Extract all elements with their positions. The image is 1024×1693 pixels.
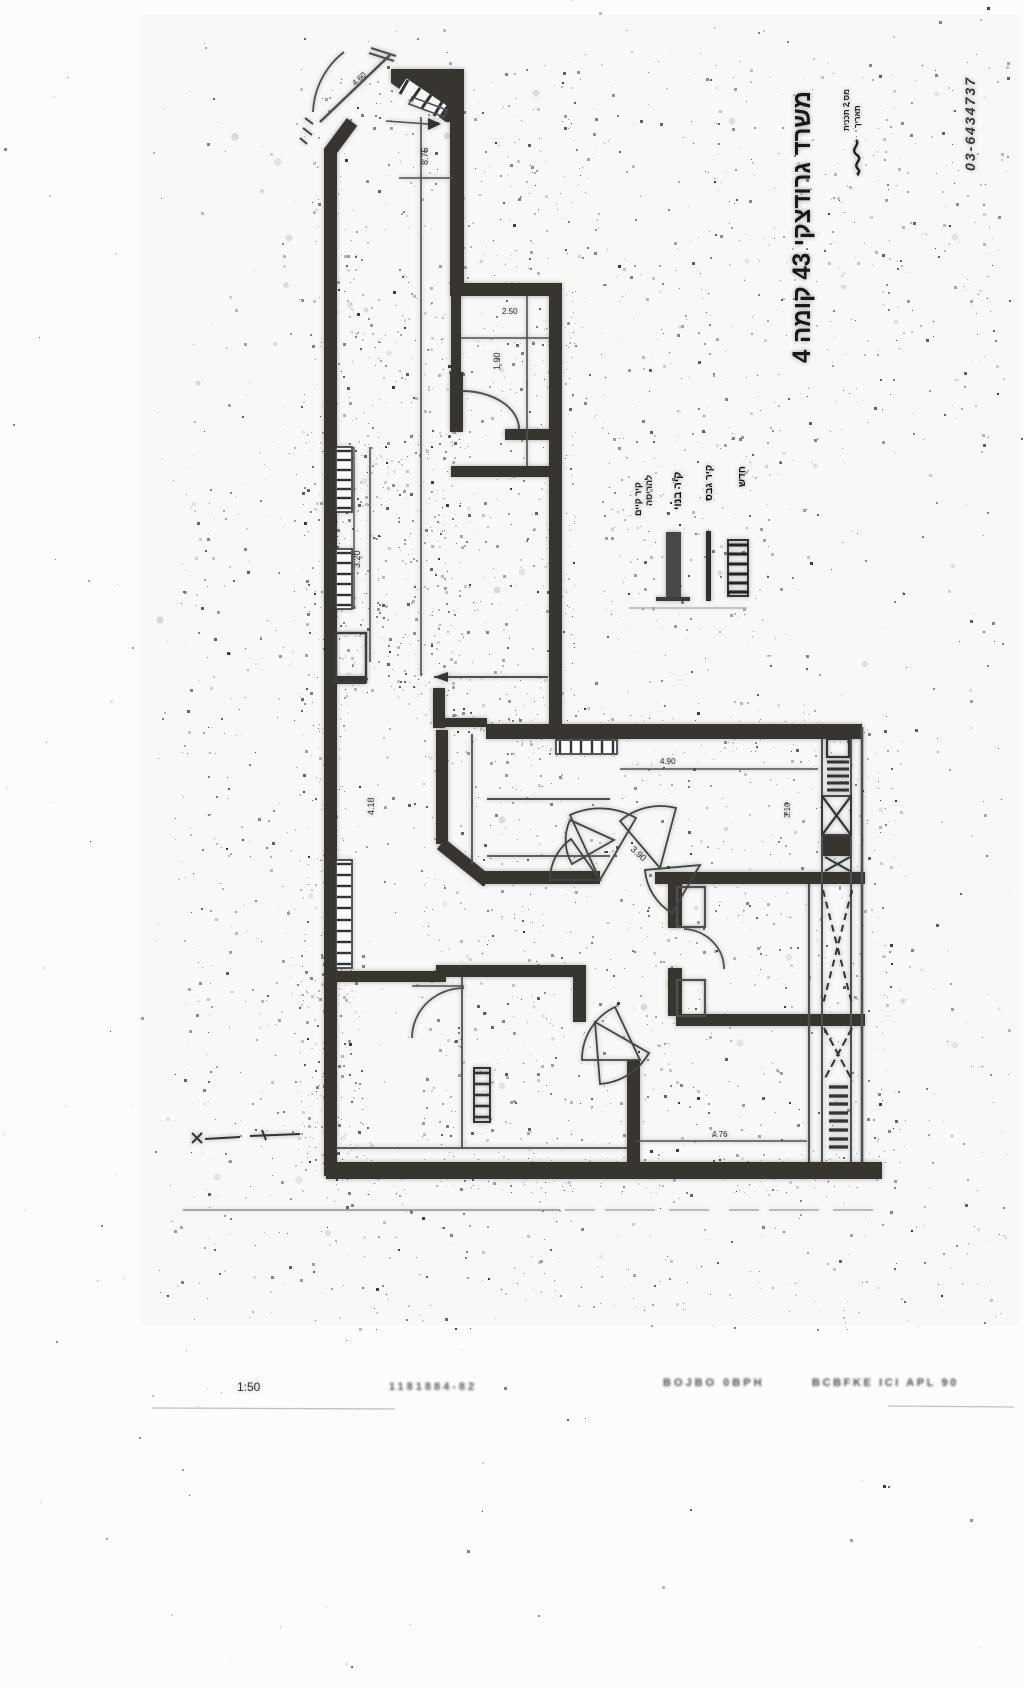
svg-text:BOJBO 0BPH: BOJBO 0BPH: [663, 1377, 765, 1389]
svg-text:1181884-82: 1181884-82: [389, 1381, 477, 1393]
svg-text:BCBFKE ICI APL 90: BCBFKE ICI APL 90: [812, 1377, 959, 1389]
